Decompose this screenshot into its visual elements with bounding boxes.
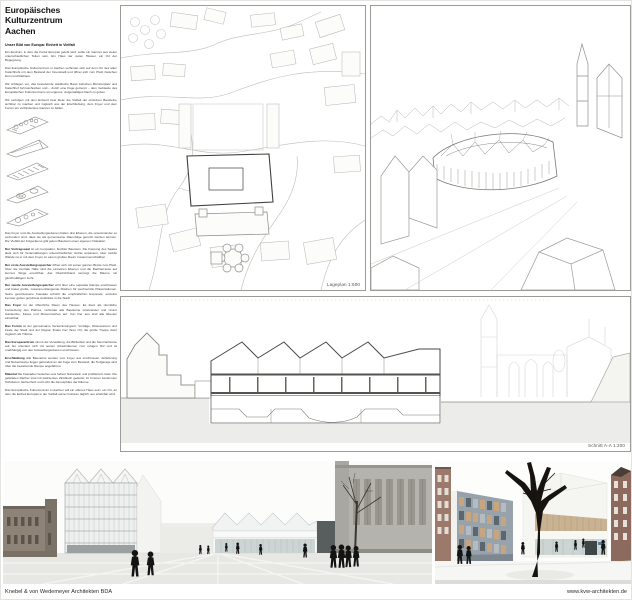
gray-slab-building xyxy=(457,491,513,563)
concept-sketch-icon xyxy=(5,206,51,227)
concept-sketch-icon xyxy=(5,183,51,204)
historic-building-left xyxy=(3,499,57,557)
paragraph: Erschließung Alle Bausteine werden vom F… xyxy=(5,356,117,369)
low-background-building xyxy=(161,527,215,553)
new-building-perspective xyxy=(433,131,557,190)
roofscape-lines xyxy=(371,98,569,138)
paragraph: Der erste Ausstellungsspeicher öffnet si… xyxy=(5,263,117,280)
tree-symbols xyxy=(129,16,166,49)
paragraph: Das Forum ist der gemeinsame Versammlung… xyxy=(5,324,117,337)
paragraph: Das Europäische Kulturzentrum in Aachen … xyxy=(5,66,117,79)
church-spire xyxy=(577,44,622,138)
paragraph: Das Europäische Kulturzentrum in Aachen … xyxy=(5,388,117,397)
presentation-board: Europäisches Kulturzentrum Aachen Unser … xyxy=(0,0,632,600)
subtitle: Unser Bild von Europa: Einheit in Vielfa… xyxy=(5,43,117,47)
floor-slab xyxy=(211,392,440,394)
website-url: www.kvw-architekten.de xyxy=(567,589,627,595)
gabled-glass-building xyxy=(65,469,137,553)
section-panel: Schnitt A-A 1:200 xyxy=(120,296,631,452)
perspective-panel xyxy=(370,5,631,291)
site-plan-panel: Lageplan 1:500 xyxy=(120,5,366,291)
brick-building-right xyxy=(611,467,631,561)
intro-paragraphs: Ein Zentrum, in dem die Kultur Europas g… xyxy=(5,50,117,111)
cathedral-backdrop xyxy=(481,305,611,397)
text-column: Europäisches Kulturzentrum Aachen Unser … xyxy=(5,5,117,457)
paragraph: Der zweite Ausstellungsspeicher wird übe… xyxy=(5,283,117,300)
rendering-courtyard xyxy=(3,461,432,584)
paragraph: Wir schlagen vor, das bestehende städtis… xyxy=(5,82,117,95)
katschhof-square xyxy=(193,104,263,150)
page-title: Europäisches Kulturzentrum Aachen xyxy=(5,5,117,36)
floor-slab xyxy=(211,374,440,376)
tree-shadow xyxy=(506,570,574,580)
title-line-1: Europäisches Kulturzentrum xyxy=(5,5,62,25)
studio-credit: Knebel & von Wedemeyer Architekten BDA xyxy=(5,589,112,595)
paragraph: Der Vortragssaal ist ein kompakter, flex… xyxy=(5,247,117,260)
building-section xyxy=(211,342,440,423)
concept-sketch-icon xyxy=(5,137,51,158)
body-paragraphs: Das Foyer und die Ausstellungsebenen bil… xyxy=(5,231,117,396)
concept-sketches xyxy=(5,114,53,227)
paragraph: Das Foyer ist der öffentliche Raum des H… xyxy=(5,303,117,320)
sawtooth-roof xyxy=(211,342,440,396)
title-line-2: Aachen xyxy=(5,26,35,36)
paragraph: Ein Zentrum, in dem die Kultur Europas g… xyxy=(5,50,117,63)
left-context-silhouette xyxy=(127,333,211,398)
concept-sketch-icon xyxy=(5,114,51,135)
concept-sketch-icon xyxy=(5,160,51,181)
section-caption: Schnitt A-A 1:200 xyxy=(588,443,625,448)
section-drawing xyxy=(121,297,630,451)
town-hall-right xyxy=(335,461,432,553)
far-right-silhouette xyxy=(591,353,630,402)
site-plan-caption: Lageplan 1:500 xyxy=(327,282,360,287)
new-building-footprint xyxy=(187,154,273,206)
basement xyxy=(211,396,440,423)
rendering-street xyxy=(435,461,631,584)
site-plan-drawing xyxy=(121,6,365,290)
paragraph: Das Foyer und die Ausstellungsebenen bil… xyxy=(5,231,117,244)
paragraph: Das Europazentrum nimmt die Verwaltung, … xyxy=(5,340,117,353)
aerial-perspective-drawing xyxy=(371,6,630,290)
paragraph: Wir verfolgen mit dem Entwurf zwei Ziele… xyxy=(5,98,117,111)
rathaus-footprint xyxy=(195,207,269,236)
paragraph: Material Die Fassaden bestehen aus helle… xyxy=(5,372,117,385)
